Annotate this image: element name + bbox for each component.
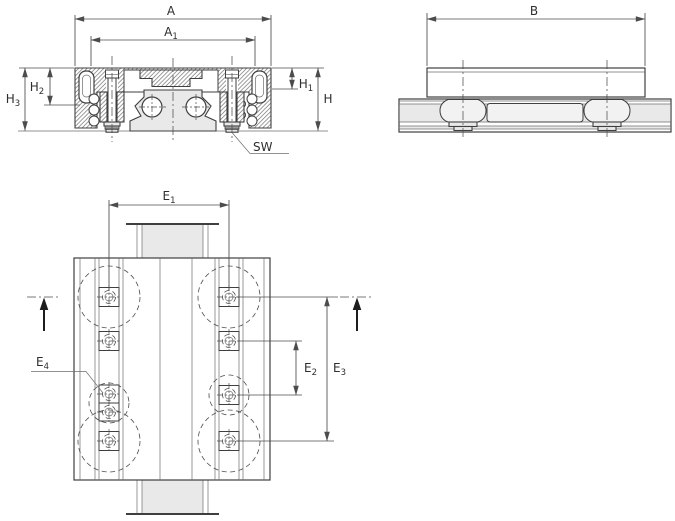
dim-label-e3: E3 bbox=[333, 361, 346, 378]
dim-label-h: H bbox=[323, 92, 332, 106]
side-view: B bbox=[399, 4, 671, 140]
cross-section-view: A A1 H3 H2 H1 H bbox=[6, 4, 333, 154]
dim-label-a1: A1 bbox=[164, 25, 178, 42]
dim-label-b: B bbox=[530, 4, 538, 18]
center-carriage-panel bbox=[487, 104, 583, 123]
dim-label-h3: H3 bbox=[6, 92, 20, 109]
dim-label-e4: E4 bbox=[36, 355, 49, 372]
dimension-H3: H3 bbox=[6, 68, 74, 131]
dimension-B: B bbox=[427, 4, 645, 66]
section-plane-arrow-right bbox=[340, 297, 374, 331]
dim-label-e1: E1 bbox=[162, 189, 175, 206]
dim-label-e2: E2 bbox=[304, 361, 317, 378]
callout-SW: SW bbox=[232, 133, 289, 155]
plan-view: E1 E2 E3 E4 bbox=[27, 189, 374, 514]
dim-label-h2: H2 bbox=[30, 80, 44, 97]
dimension-E3: E3 bbox=[327, 297, 346, 441]
dimension-H2: H2 bbox=[30, 68, 80, 105]
dim-label-a: A bbox=[167, 4, 176, 18]
drawing-canvas: A A1 H3 H2 H1 H bbox=[0, 0, 675, 521]
dimension-H1: H1 bbox=[272, 68, 313, 94]
dim-label-sw: SW bbox=[253, 140, 273, 154]
technical-drawing: A A1 H3 H2 H1 H bbox=[0, 0, 675, 521]
dimension-E2: E2 bbox=[296, 341, 317, 395]
section-plane-arrow-left bbox=[27, 297, 61, 331]
dim-label-h1: H1 bbox=[299, 77, 313, 94]
